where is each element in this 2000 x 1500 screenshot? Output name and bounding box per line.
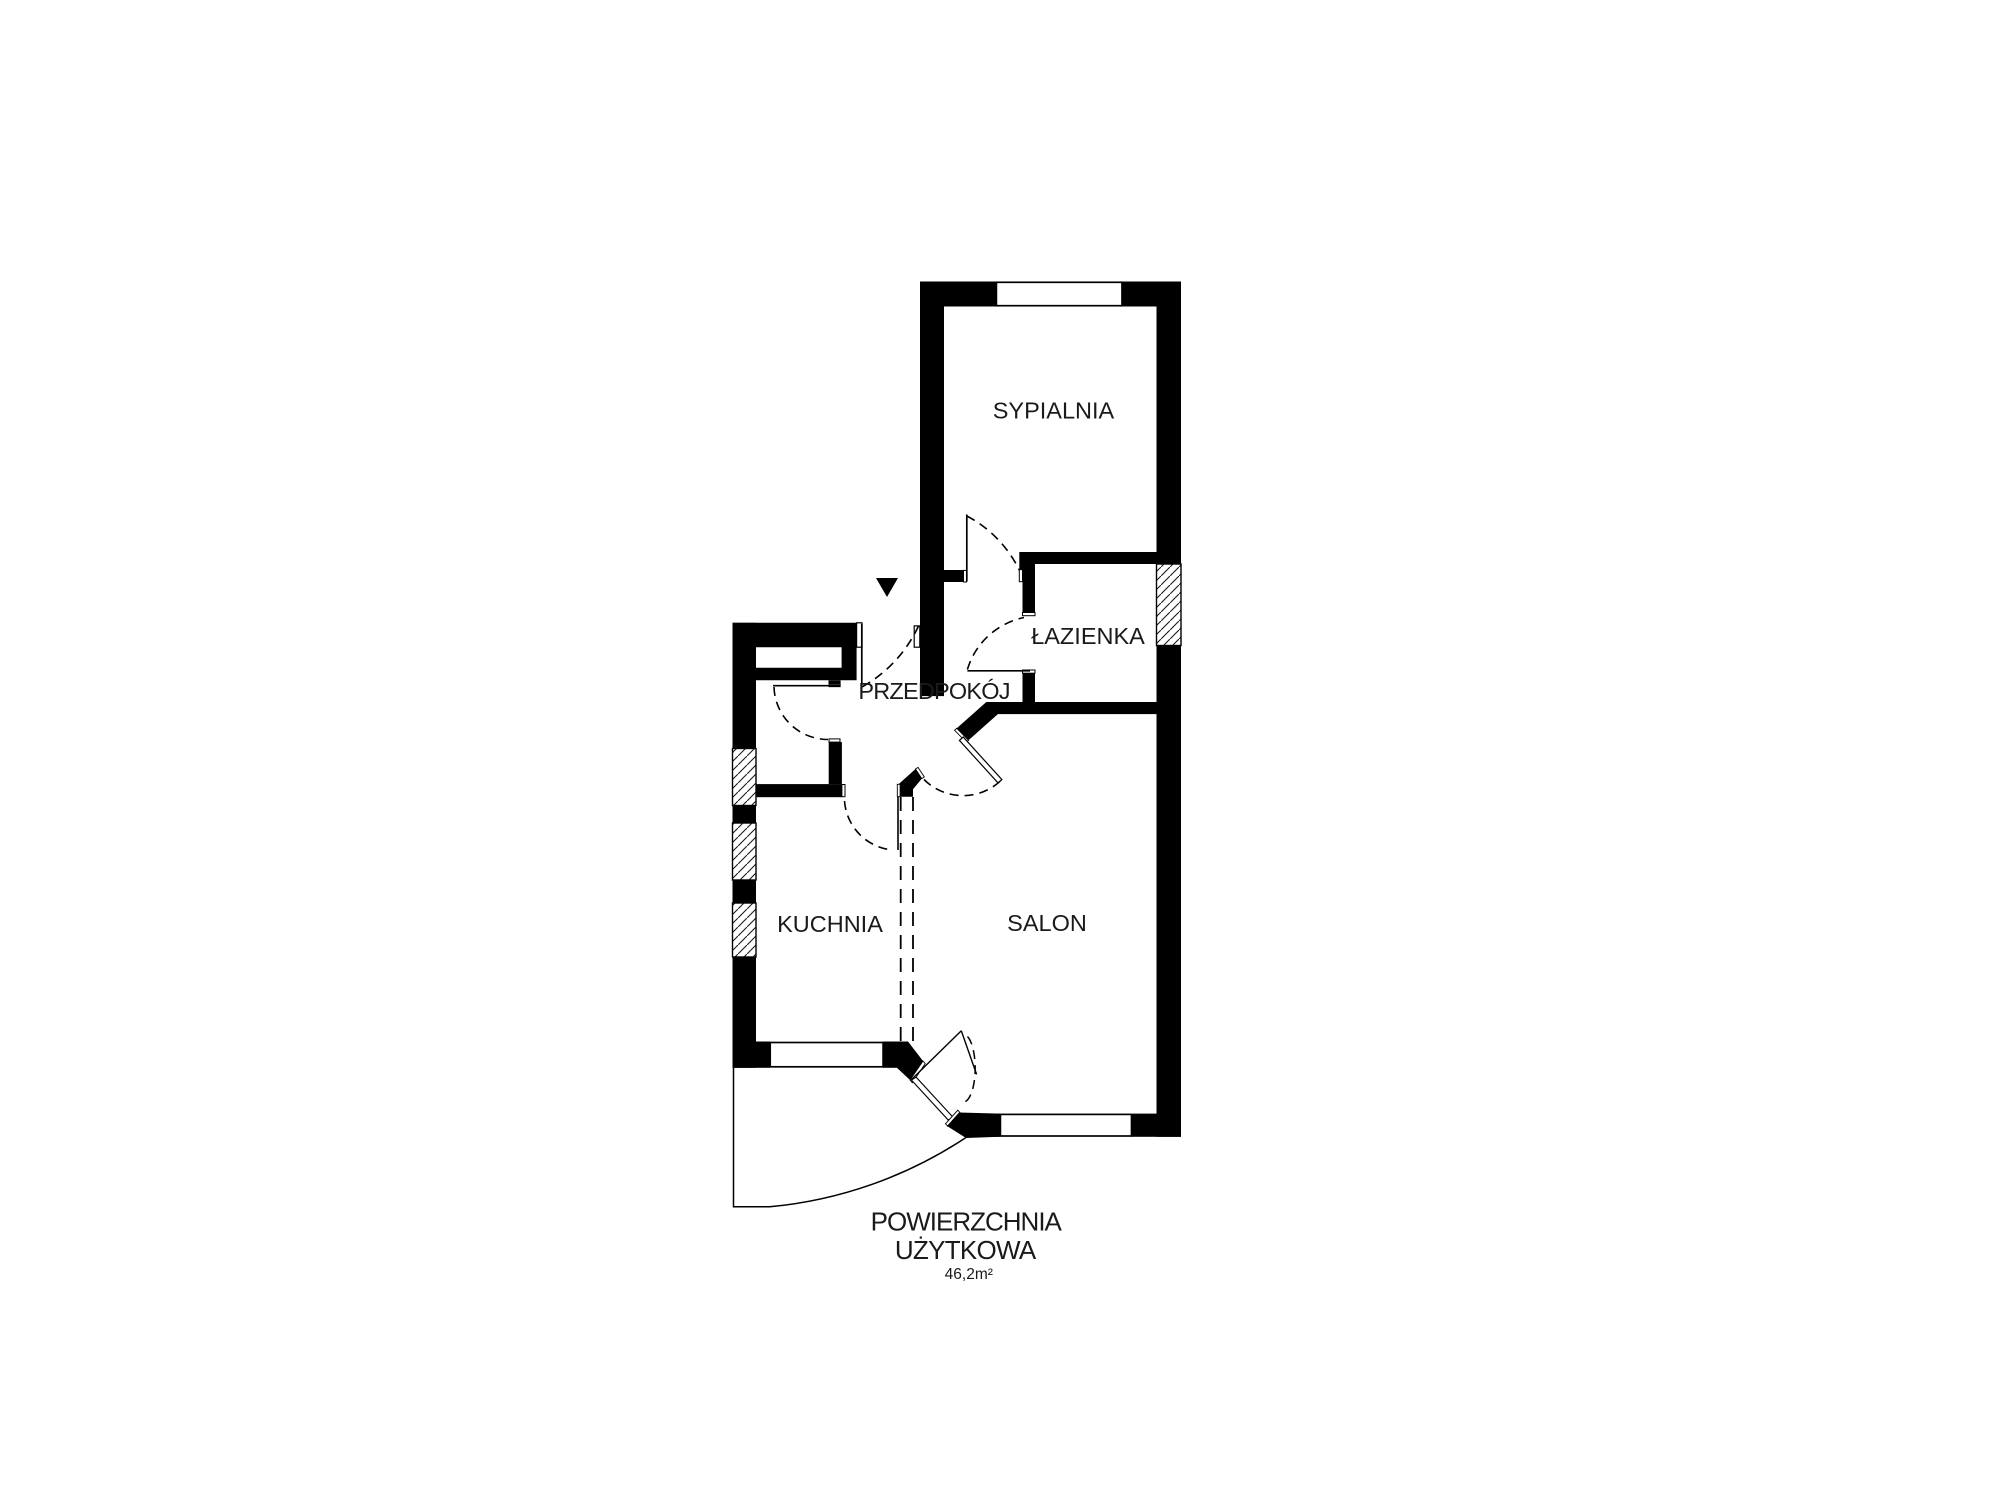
svg-text:SALON: SALON <box>1007 910 1087 936</box>
svg-text:SYPIALNIA: SYPIALNIA <box>993 398 1115 424</box>
svg-text:POWIERZCHNIA: POWIERZCHNIA <box>871 1207 1063 1237</box>
svg-text:46,2m²: 46,2m² <box>945 1266 993 1283</box>
svg-text:KUCHNIA: KUCHNIA <box>777 911 883 937</box>
svg-text:UŻYTKOWA: UŻYTKOWA <box>895 1235 1037 1265</box>
svg-text:ŁAZIENKA: ŁAZIENKA <box>1031 623 1145 649</box>
svg-text:PRZEDPOKÓJ: PRZEDPOKÓJ <box>858 678 1009 704</box>
